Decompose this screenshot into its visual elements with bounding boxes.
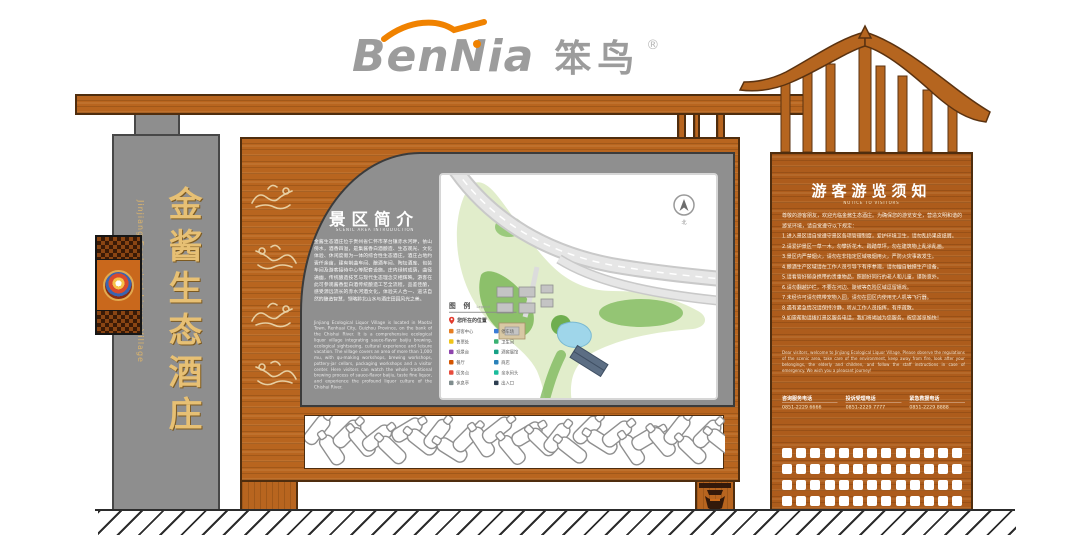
legend-item: 餐厅 [449, 359, 494, 365]
notice-board: 游客游览须知 NOTICE TO VISITORS 尊敬的游客朋友，欢迎光临金酱… [770, 152, 973, 511]
legend-item-icon [449, 329, 454, 334]
map-pin-icon [449, 317, 454, 324]
notice-subtitle: NOTICE TO VISITORS [780, 201, 963, 205]
hanging-slat [677, 113, 686, 139]
legend-subtitle: Legend [477, 305, 490, 309]
legend-item: 医务点 [449, 369, 494, 375]
center-left-leg [240, 480, 298, 511]
wood-carving-icon [248, 299, 300, 331]
legend-item: 商店 [494, 359, 539, 365]
notice-text-en: Dear visitors, welcome to Jinjiang Ecolo… [782, 350, 965, 374]
perforation-grid [782, 448, 962, 506]
legend-item-icon [449, 370, 454, 375]
notice-contacts: 咨询服务电话0851-2229 6666 投诉受理电话0851-2229 777… [782, 394, 965, 410]
intro-title: 景区简介 [308, 206, 440, 230]
legend-item-icon [494, 370, 499, 375]
center-wood-panel: 景区简介 SCENIC AREA INTRODUCTION 金酱生态酒庄位于贵州… [240, 137, 740, 482]
pillar-chinese-name: 金酱生态酒庄 [158, 186, 207, 456]
center-right-leg [695, 480, 735, 511]
scenic-area-map: 北 图 例 Legend 您所在的位置 游客中心 停车场 [439, 173, 718, 400]
legend-item-icon [494, 350, 499, 355]
intro-text-cn: 金酱生态酒庄位于贵州省仁怀市茅台镇赤水河畔，依山傍水，酒香四溢，是集酱香白酒酿造… [314, 238, 432, 303]
legend-item: 停车场 [494, 328, 539, 334]
pagoda-roof [728, 24, 1018, 154]
legend-item: 观景台 [449, 349, 494, 355]
legend-item-icon [449, 350, 454, 355]
legend-item-icon [494, 381, 499, 386]
pillar-lantern-ornament [95, 235, 142, 335]
legend-title: 图 例 [449, 301, 473, 310]
contact-block: 投诉受理电话0851-2229 7777 [846, 394, 902, 410]
jar-emblem-icon [697, 483, 733, 510]
legend-item: 卫生间 [494, 338, 539, 344]
svg-text:北: 北 [681, 219, 686, 226]
contact-block: 咨询服务电话0851-2229 6666 [782, 394, 838, 410]
notice-title: 游客游览须知 [772, 180, 971, 201]
you-are-here-label: 您所在的位置 [457, 317, 487, 324]
brand-logo: BenNia 笨鸟 ® [352, 28, 712, 90]
intro-text-en: Jinjiang Ecological Liquor Village is lo… [314, 320, 432, 391]
map-pond [557, 322, 591, 347]
legend-item: 酒窖展馆 [494, 349, 539, 355]
legend-item: 游客中心 [449, 328, 494, 334]
wood-carving-icon [248, 241, 300, 273]
hanging-slat [716, 113, 725, 139]
bottle-pattern-band [304, 415, 724, 469]
legend-item-icon [494, 360, 499, 365]
lattice-pattern-top [97, 237, 140, 260]
legend-item-icon [449, 360, 454, 365]
legend-item-icon [494, 329, 499, 334]
contact-block: 紧急救援电话0851-2229 8888 [909, 394, 965, 410]
ground-hatching [98, 511, 1016, 535]
hanging-slat [693, 113, 700, 139]
intro-panel: 景区简介 SCENIC AREA INTRODUCTION 金酱生态酒庄位于贵州… [300, 152, 735, 407]
legend-item-icon [494, 339, 499, 344]
legend-item-icon [449, 381, 454, 386]
legend-item: 售票处 [449, 338, 494, 344]
intro-subtitle: SCENIC AREA INTRODUCTION [310, 228, 440, 232]
logo-orange-dot-icon [473, 40, 481, 48]
brand-logo-chinese: 笨鸟 [554, 28, 640, 82]
registered-trademark-icon: ® [646, 38, 659, 53]
main-beam [75, 94, 805, 115]
legend-item: 亲水码头 [494, 369, 539, 375]
wood-carving-icon [248, 181, 300, 213]
wood-carving-icon [248, 357, 300, 389]
map-legend: 图 例 Legend 您所在的位置 游客中心 停车场 售票处 卫生间 观景台 酒… [449, 301, 548, 386]
legend-item: 出入口 [494, 380, 539, 386]
emblem-icon [103, 270, 134, 301]
lattice-pattern-bottom [97, 310, 140, 333]
notice-text-cn: 尊敬的游客朋友，欢迎光临金酱生态酒庄。为确保您的游览安全，营造文明和谐的游览环境… [782, 211, 962, 324]
legend-item-icon [449, 339, 454, 344]
legend-item: 休息亭 [449, 380, 494, 386]
signage-design-canvas: BenNia 笨鸟 ® Jinjiang Ecological Liquor V… [0, 0, 1080, 544]
